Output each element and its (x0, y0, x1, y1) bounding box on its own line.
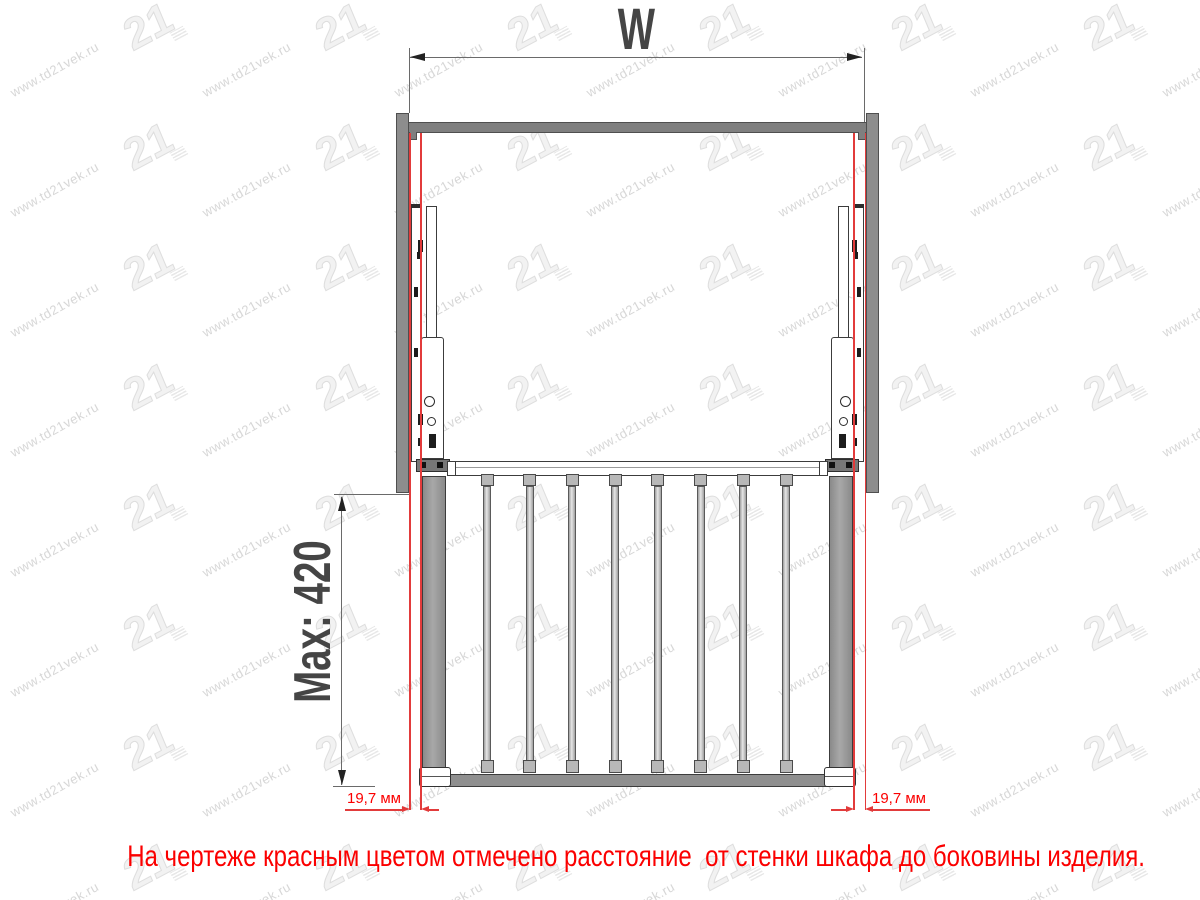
basket-bar-bottom-connector (566, 760, 579, 773)
carriage-latch-left (429, 434, 436, 448)
basket-top-rail (447, 461, 828, 476)
watermark-text: www.td21vek.ru (1160, 759, 1200, 820)
caption-text: На чертеже красным цветом отмечено расст… (127, 840, 1145, 874)
watermark-logo: 21 (881, 0, 962, 64)
carriage-roller-left-1 (424, 396, 435, 407)
red-line-product-left (420, 133, 422, 810)
carriage-roller-right-2 (839, 417, 848, 426)
basket-bar-bottom-connector (609, 760, 622, 773)
gap-dimension-label-left: 19,7 мм (330, 790, 418, 807)
basket-bar-bottom-connector (737, 760, 750, 773)
basket-foot-right-seam (825, 776, 855, 777)
watermark-text: www.td21vek.ru (200, 519, 294, 580)
basket-top-rail-endcap-left (447, 461, 456, 476)
watermark-logo-21: 21 (497, 235, 568, 299)
watermark-text: www.td21vek.ru (8, 879, 102, 900)
watermark-logo: 21 (113, 352, 194, 425)
basket-bar-top-connector (523, 474, 536, 486)
red-line-wall-right (865, 133, 867, 810)
watermark-logo: 21 (497, 352, 578, 425)
watermark-logo-21: 21 (881, 235, 952, 299)
basket-bar-bottom-connector (694, 760, 707, 773)
watermark-logo: 21 (305, 352, 386, 425)
watermark-text: www.td21vek.ru (584, 159, 678, 220)
watermark-text: www.td21vek.ru (584, 879, 678, 900)
watermark-logo-21: 21 (113, 715, 184, 779)
watermark-logo-21: 21 (881, 715, 952, 779)
basket-top-rail-endcap-right (819, 461, 828, 476)
watermark-logo-21: 21 (881, 475, 952, 539)
basket-foot-right (824, 767, 856, 787)
watermark-logo: 21 (881, 472, 962, 545)
watermark-logo: 21 (113, 592, 194, 665)
watermark-logo: 21 (881, 112, 962, 185)
watermark-logo-21: 21 (113, 0, 184, 59)
gap-dim-arrow-right-out (846, 806, 854, 812)
watermark-text: www.td21vek.ru (584, 519, 678, 580)
cabinet-side-wall-right (866, 113, 879, 493)
depth-dimension-label: Max: 420 (284, 540, 342, 703)
rail-clip (854, 252, 858, 259)
watermark-logo-21: 21 (113, 235, 184, 299)
bracket-bolt-right-1 (829, 462, 835, 468)
watermark-logo: 21 (113, 232, 194, 305)
watermark-text: www.td21vek.ru (200, 759, 294, 820)
gap-dimension-label-right: 19,7 мм (855, 790, 943, 807)
watermark-text: www.td21vek.ru (584, 639, 678, 700)
depth-dim-extension-top (334, 494, 409, 495)
basket-bar-top-connector (609, 474, 622, 486)
watermark-logo-21: 21 (305, 235, 376, 299)
watermark-logo: 21 (305, 112, 386, 185)
watermark-logo-21: 21 (1073, 475, 1144, 539)
carriage-latch-right (839, 434, 846, 448)
watermark-text: www.td21vek.ru (1160, 639, 1200, 700)
basket-bar-top-connector (780, 474, 793, 486)
watermark-text: www.td21vek.ru (1160, 39, 1200, 100)
watermark-text: www.td21vek.ru (584, 279, 678, 340)
watermark-text: www.td21vek.ru (968, 39, 1062, 100)
gap-dim-arrow-left-out (421, 806, 429, 812)
basket-post-right (829, 476, 853, 768)
red-line-product-right (853, 133, 855, 810)
watermark-logo: 21 (305, 232, 386, 305)
watermark-logo-21: 21 (689, 235, 760, 299)
basket-bar (568, 486, 576, 761)
watermark-logo-21: 21 (113, 355, 184, 419)
watermark-text: www.td21vek.ru (8, 399, 102, 460)
watermark-text: www.td21vek.ru (968, 879, 1062, 900)
watermark-logo-21: 21 (305, 0, 376, 59)
technical-drawing-canvas: www.td21vek.ru21www.td21vek.ru21www.td21… (0, 0, 1200, 900)
gap-dim-line-right-stub (831, 809, 846, 811)
depth-dim-arrow-bottom (338, 770, 346, 785)
watermark-logo-21: 21 (1073, 595, 1144, 659)
rail-clip (414, 287, 418, 297)
rail-clip (857, 348, 861, 357)
watermark-logo: 21 (689, 352, 770, 425)
depth-dimension-line (341, 497, 342, 785)
watermark-text: www.td21vek.ru (200, 639, 294, 700)
basket-bar-top-connector (651, 474, 664, 486)
watermark-text: www.td21vek.ru (776, 879, 870, 900)
watermark-text: www.td21vek.ru (584, 399, 678, 460)
watermark-logo: 21 (1073, 592, 1154, 665)
gap-dim-line-left-tail (345, 809, 402, 811)
watermark-logo-21: 21 (1073, 715, 1144, 779)
watermark-logo-21: 21 (881, 115, 952, 179)
basket-bar (782, 486, 790, 761)
watermark-text: www.td21vek.ru (968, 279, 1062, 340)
watermark-logo: 21 (881, 352, 962, 425)
basket-bar-bottom-connector (780, 760, 793, 773)
width-dim-extension-right (864, 48, 865, 132)
watermark-text: www.td21vek.ru (968, 759, 1062, 820)
basket-foot-left (419, 767, 451, 787)
width-dim-arrow-left (410, 53, 425, 61)
watermark-text: www.td21vek.ru (200, 159, 294, 220)
watermark-logo-21: 21 (689, 355, 760, 419)
watermark-logo-21: 21 (113, 475, 184, 539)
rail-clip (857, 287, 861, 297)
basket-post-left (422, 476, 446, 768)
watermark-text: www.td21vek.ru (1160, 519, 1200, 580)
basket-foot-left-seam (420, 776, 450, 777)
watermark-text: www.td21vek.ru (8, 39, 102, 100)
watermark-text: www.td21vek.ru (8, 279, 102, 340)
depth-dimension-label-wrap: Max: 420 (283, 577, 333, 703)
cabinet-side-wall-left (396, 113, 409, 493)
watermark-text: www.td21vek.ru (200, 879, 294, 900)
gap-dim-line-left-stub (429, 809, 439, 811)
watermark-logo-21: 21 (113, 595, 184, 659)
red-line-wall-left (409, 133, 411, 810)
watermark-logo-21: 21 (1073, 115, 1144, 179)
basket-bottom-rail (448, 774, 827, 787)
width-dim-extension-left (409, 48, 410, 113)
bracket-bolt-right-2 (846, 462, 852, 468)
watermark-text: www.td21vek.ru (1160, 279, 1200, 340)
watermark-logo: 21 (1073, 112, 1154, 185)
basket-top-rail-groove (448, 467, 827, 468)
watermark-logo: 21 (1073, 712, 1154, 785)
watermark-logo-21: 21 (305, 115, 376, 179)
watermark-logo: 21 (1073, 472, 1154, 545)
gap-dim-line-right-tail (872, 809, 930, 811)
watermark-logo-21: 21 (1073, 355, 1144, 419)
watermark-text: www.td21vek.ru (1160, 879, 1200, 900)
basket-bar-bottom-connector (651, 760, 664, 773)
watermark-logo: 21 (1073, 232, 1154, 305)
watermark-logo: 21 (1073, 0, 1154, 64)
basket-bar-top-connector (566, 474, 579, 486)
watermark-logo: 21 (497, 592, 578, 665)
watermark-logo-21: 21 (305, 355, 376, 419)
watermark-logo-21: 21 (881, 0, 952, 59)
watermark-text: www.td21vek.ru (8, 159, 102, 220)
carriage-roller-right-1 (840, 396, 851, 407)
watermark-text: www.td21vek.ru (200, 399, 294, 460)
watermark-logo-21: 21 (881, 355, 952, 419)
watermark-logo: 21 (305, 0, 386, 64)
watermark-logo-21: 21 (113, 115, 184, 179)
watermark-logo-21: 21 (881, 595, 952, 659)
watermark-logo: 21 (689, 232, 770, 305)
watermark-text: www.td21vek.ru (392, 879, 486, 900)
watermark-logo: 21 (1073, 352, 1154, 425)
watermark-text: www.td21vek.ru (8, 759, 102, 820)
watermark-logo: 21 (113, 712, 194, 785)
watermark-logo: 21 (113, 0, 194, 64)
basket-bar (483, 486, 491, 761)
watermark-text: www.td21vek.ru (8, 639, 102, 700)
watermark-text: www.td21vek.ru (200, 279, 294, 340)
watermark-logo: 21 (881, 712, 962, 785)
basket-bar (697, 486, 705, 761)
watermark-text: www.td21vek.ru (968, 159, 1062, 220)
basket-bar-top-connector (481, 474, 494, 486)
watermark-text: www.td21vek.ru (200, 39, 294, 100)
bracket-bolt-left-2 (437, 462, 443, 468)
watermark-logo-21: 21 (1073, 0, 1144, 59)
depth-dim-arrow-top (338, 496, 346, 511)
basket-bar-top-connector (694, 474, 707, 486)
width-dimension-label-wrap: W (410, 0, 862, 63)
watermark-text: www.td21vek.ru (968, 639, 1062, 700)
watermark-logo: 21 (497, 232, 578, 305)
carriage-roller-left-2 (427, 417, 436, 426)
watermark-logo-21: 21 (497, 355, 568, 419)
basket-bar-top-connector (737, 474, 750, 486)
basket-bar (739, 486, 747, 761)
watermark-text: www.td21vek.ru (1160, 399, 1200, 460)
basket-bar-bottom-connector (481, 760, 494, 773)
watermark-logo: 21 (113, 112, 194, 185)
basket-bar (654, 486, 662, 761)
watermark-logo: 21 (113, 472, 194, 545)
width-dim-arrow-right (847, 53, 862, 61)
basket-bar (611, 486, 619, 761)
width-dimension-line (410, 57, 862, 58)
rail-clip (414, 348, 418, 357)
watermark-text: www.td21vek.ru (8, 519, 102, 580)
watermark-text: www.td21vek.ru (968, 519, 1062, 580)
watermark-text: www.td21vek.ru (968, 399, 1062, 460)
depth-dim-extension-bottom (333, 786, 375, 787)
watermark-text: www.td21vek.ru (1160, 159, 1200, 220)
caption-wrap: На чертеже красным цветом отмечено расст… (0, 840, 1200, 874)
basket-bar (526, 486, 534, 761)
watermark-logo: 21 (881, 232, 962, 305)
basket-bar-bottom-connector (523, 760, 536, 773)
watermark-logo-21: 21 (1073, 235, 1144, 299)
slide-outer-rail-cap-right (854, 204, 864, 208)
watermark-logo: 21 (881, 592, 962, 665)
cabinet-top-rail (408, 122, 867, 133)
width-dimension-label: W (617, 0, 654, 63)
